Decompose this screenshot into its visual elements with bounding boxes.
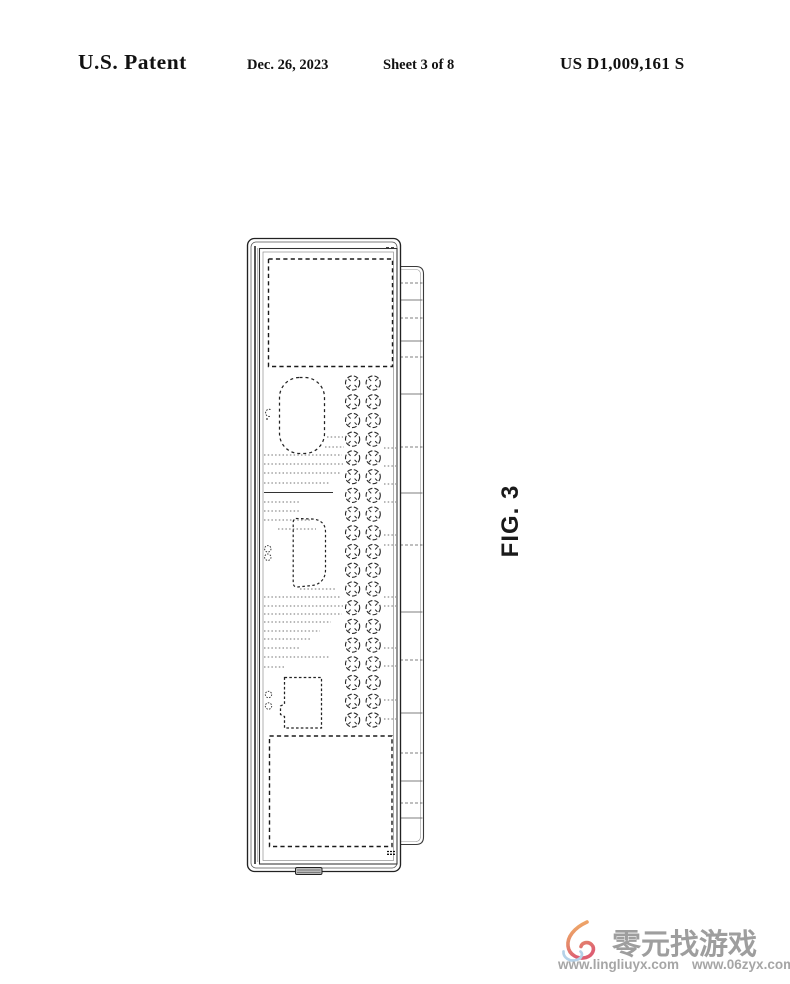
watermark: 零元找游戏 www.lingliuyx.com www.06zyx.com <box>556 918 768 978</box>
watermark-url-2: www.06zyx.com <box>692 957 790 972</box>
patent-figure-drawing <box>0 0 790 984</box>
bottom-foot <box>296 868 323 875</box>
watermark-urls: www.lingliuyx.com www.06zyx.com <box>558 957 766 972</box>
figure-label: FIG. 3 <box>495 451 527 591</box>
watermark-url-1: www.lingliuyx.com <box>558 957 679 972</box>
rear-panel <box>260 249 398 865</box>
patent-sheet-page: U.S. Patent Dec. 26, 2023 Sheet 3 of 8 U… <box>0 0 790 984</box>
